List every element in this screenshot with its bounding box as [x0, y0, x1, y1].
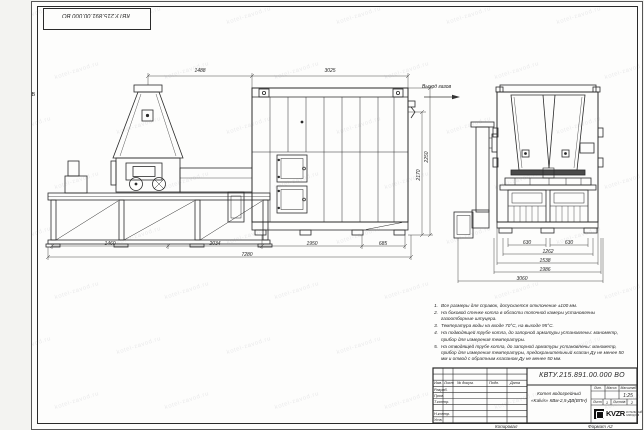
tb-sheet-label: Лист: [593, 400, 602, 404]
note-item: 2.На боковой стенке котла в области топо…: [430, 310, 628, 322]
tb-col-data: Дата: [510, 381, 520, 385]
tb-sheets-value: 2: [627, 400, 637, 405]
kvzr-logo-icon: [594, 409, 604, 419]
dim-end-1986: 1986: [530, 267, 560, 273]
drawing-page: kotel-zavod.rukotel-zavod.rukotel-zavod.…: [0, 0, 644, 430]
note-item: 5.На отводящей трубе котла, до запорной …: [430, 344, 628, 362]
dim-height-inner: 2170: [416, 161, 422, 189]
tb-col-podp: Подп.: [489, 381, 499, 385]
tb-scale-label: Масштаб: [621, 386, 637, 390]
doc-designation: КВТУ.215.891.00.000 ВО: [529, 372, 635, 379]
notes-block: 1.Все размеры для справок, допускается о…: [430, 303, 628, 363]
tb-scale-value: 1:25: [619, 393, 637, 399]
dim-end-630a: 630: [512, 240, 542, 246]
tb-mass-label: Масса: [607, 386, 617, 390]
dim-top-left: 1488: [180, 68, 220, 74]
dim-end-1262: 1262: [533, 249, 563, 255]
tb-sheets-label: Листов: [613, 400, 625, 404]
tb-col-izm: Изм.: [434, 381, 442, 385]
dim-end-630b: 630: [554, 240, 584, 246]
dim-bottom-3: 1950: [292, 241, 332, 247]
format-label: Формат А2: [588, 424, 613, 429]
dim-height-outer: 2250: [424, 143, 430, 171]
doc-name: Котел водогрейный «Kalvis» КВм-2,5-ДВ(ВП…: [529, 391, 589, 404]
kvzr-logo-caption: КОТЕЛЬНЫЙ ЗАВОД РФ: [626, 411, 642, 418]
kvzr-logo-text: KVZR: [606, 409, 625, 418]
end-view: [454, 85, 603, 238]
dim-bottom-1: 1460: [90, 241, 130, 247]
tb-role-utv: Утв.: [434, 418, 443, 422]
note-item: 1.Все размеры для справок, допускается о…: [430, 303, 628, 309]
gas-outlet-label: Выход газов: [422, 84, 470, 90]
dim-end-total: 3060: [507, 276, 537, 282]
tb-col-dokum: № докум.: [457, 381, 474, 385]
side-view: [46, 85, 415, 247]
note-item: 3.Температура воды на входе 70°С, на вых…: [430, 323, 628, 329]
dim-bottom-total: 7280: [227, 252, 267, 258]
dim-bottom-4: 685: [363, 241, 403, 247]
drawing-canvas: [0, 0, 644, 430]
tb-role-nkontr: Н.контр.: [434, 412, 450, 416]
tb-role-tkontr: Т.контр.: [434, 400, 449, 404]
dim-bottom-2: 2034: [195, 241, 235, 247]
tb-col-list: Лист: [444, 381, 454, 385]
dim-top-right: 3025: [310, 68, 350, 74]
tb-role-razrab: Разраб.: [434, 388, 448, 392]
note-item: 4.На подводящей трубе котла, до запорной…: [430, 330, 628, 342]
copy-label: Копировал: [495, 424, 517, 429]
tb-role-prov: Пров.: [434, 394, 444, 398]
tb-sheet-value: 1: [603, 400, 611, 405]
dim-end-1538: 1538: [530, 258, 560, 264]
tb-lit-label: Лит.: [594, 386, 602, 390]
